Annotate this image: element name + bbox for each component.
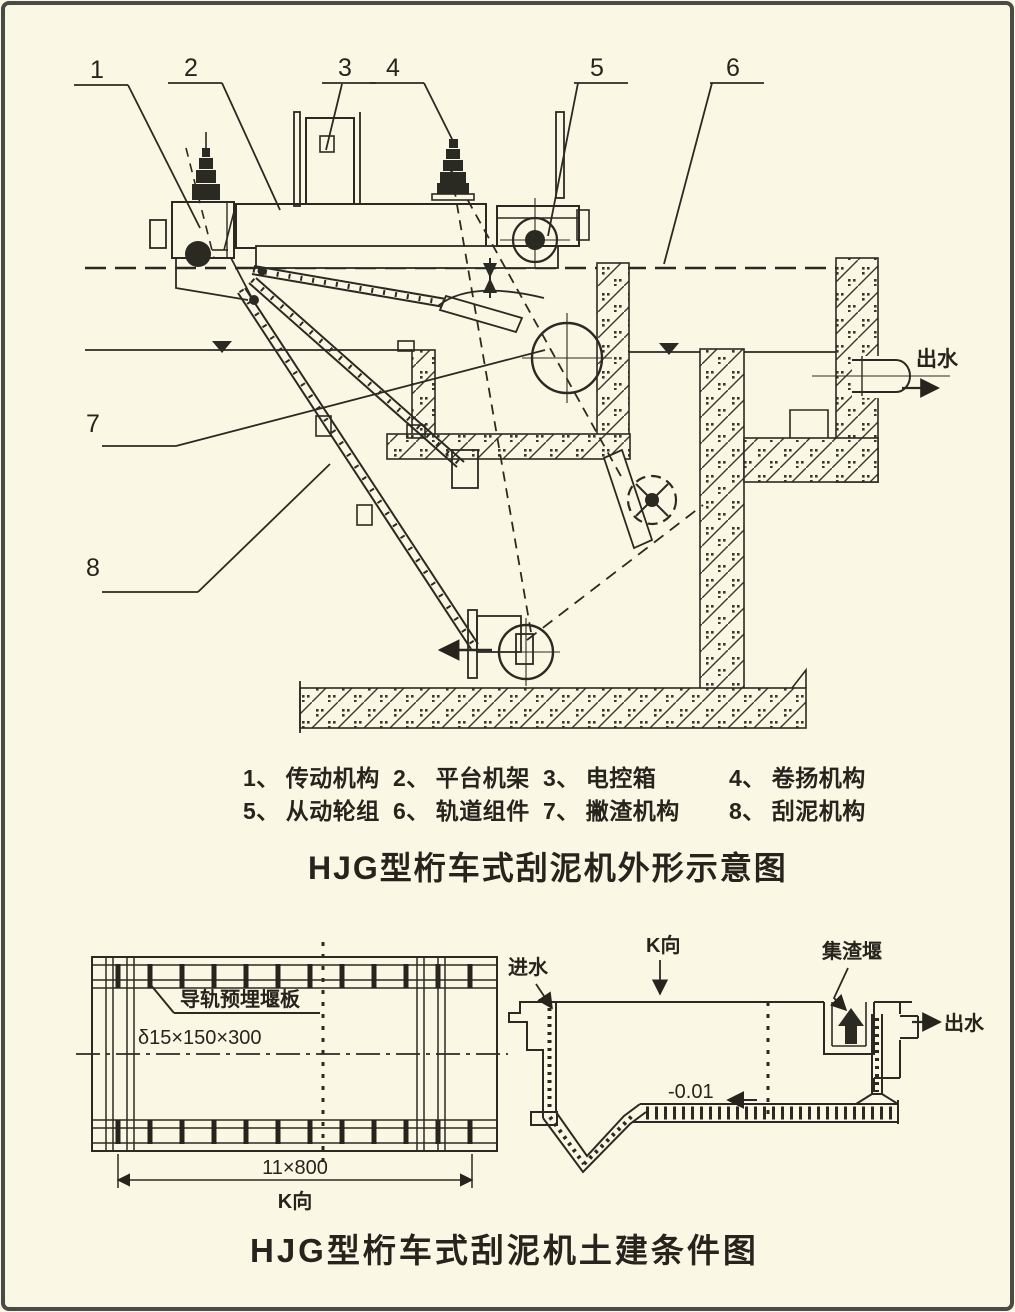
svg-text:6: 6	[726, 54, 740, 82]
legend-item-7: 7、撇渣机构	[543, 795, 729, 828]
civil-works-title: HJG型桁车式刮泥机土建条件图	[250, 1224, 759, 1272]
drive-motor-icon	[192, 132, 220, 200]
weir-flow-arrow-icon	[838, 1008, 864, 1044]
technical-drawing-canvas: 出水	[0, 0, 1015, 1312]
inlet-label: 进水	[508, 956, 549, 979]
legend-item-6: 6、轨道组件	[393, 795, 543, 828]
rail-coupling-icon	[483, 258, 497, 298]
scraper-machine-cart	[150, 112, 589, 305]
callout-8: 8	[86, 464, 330, 592]
svg-text:4: 4	[386, 54, 400, 82]
callout-4: 4	[370, 54, 455, 145]
svg-text:1: 1	[90, 56, 104, 84]
skimmer-discharge-icon	[604, 450, 676, 548]
plan-dimension-text: 11×800	[262, 1157, 328, 1179]
drive-wheel-icon	[185, 241, 211, 267]
svg-text:7: 7	[86, 410, 100, 438]
svg-text:2: 2	[184, 54, 198, 82]
scum-weir-label: 集渣堰	[821, 939, 882, 963]
scanned-drawing-page: 出水	[0, 0, 1015, 1312]
plan-note-line2: δ15×150×300	[138, 1027, 261, 1049]
plan-view: 导轨预埋堰板 δ15×150×300 11×800 K向	[76, 942, 508, 1213]
legend-item-5: 5、从动轮组	[243, 795, 393, 828]
winch-icon	[432, 139, 474, 200]
outlet-flow-label: 出水	[902, 348, 959, 388]
plan-note-line1: 导轨预埋堰板	[180, 987, 301, 1011]
concrete-structures	[300, 258, 878, 733]
floor-level-label: -0.01	[668, 1081, 714, 1103]
callout-6: 6	[664, 54, 764, 264]
legend-item-8: 8、刮泥机构	[729, 795, 899, 828]
svg-text:3: 3	[338, 54, 352, 82]
callout-2: 2	[168, 54, 280, 210]
section-direction-label: K向	[646, 933, 680, 957]
svg-text:8: 8	[86, 554, 100, 582]
inlet-arrow-icon	[536, 984, 552, 1008]
main-diagram-title: HJG型桁车式刮泥机外形示意图	[308, 843, 788, 889]
scraper-blade-icon	[468, 610, 560, 686]
legend-item-3: 3、电控箱	[543, 762, 729, 795]
legend-item-1: 1、传动机构	[243, 762, 393, 795]
section-view: 进水 K向 集渣堰 出水 -0.01	[508, 933, 985, 1172]
scum-weir-leader-icon	[834, 968, 848, 1010]
outlet-water-text: 出水	[916, 348, 959, 371]
legend-item-2: 2、平台机架	[393, 762, 543, 795]
legend-row-2: 5、从动轮组 6、轨道组件 7、撇渣机构 8、刮泥机构	[243, 795, 899, 828]
svg-text:5: 5	[590, 54, 604, 82]
parts-legend: 1、传动机构 2、平台机架 3、电控箱 4、卷扬机构 5、从动轮组 6、轨道组件…	[243, 762, 899, 828]
plan-direction-text: K向	[278, 1189, 312, 1213]
section-outlet-label: 出水	[944, 1012, 985, 1035]
legend-item-4: 4、卷扬机构	[729, 762, 899, 795]
legend-row-1: 1、传动机构 2、平台机架 3、电控箱 4、卷扬机构	[243, 762, 899, 795]
